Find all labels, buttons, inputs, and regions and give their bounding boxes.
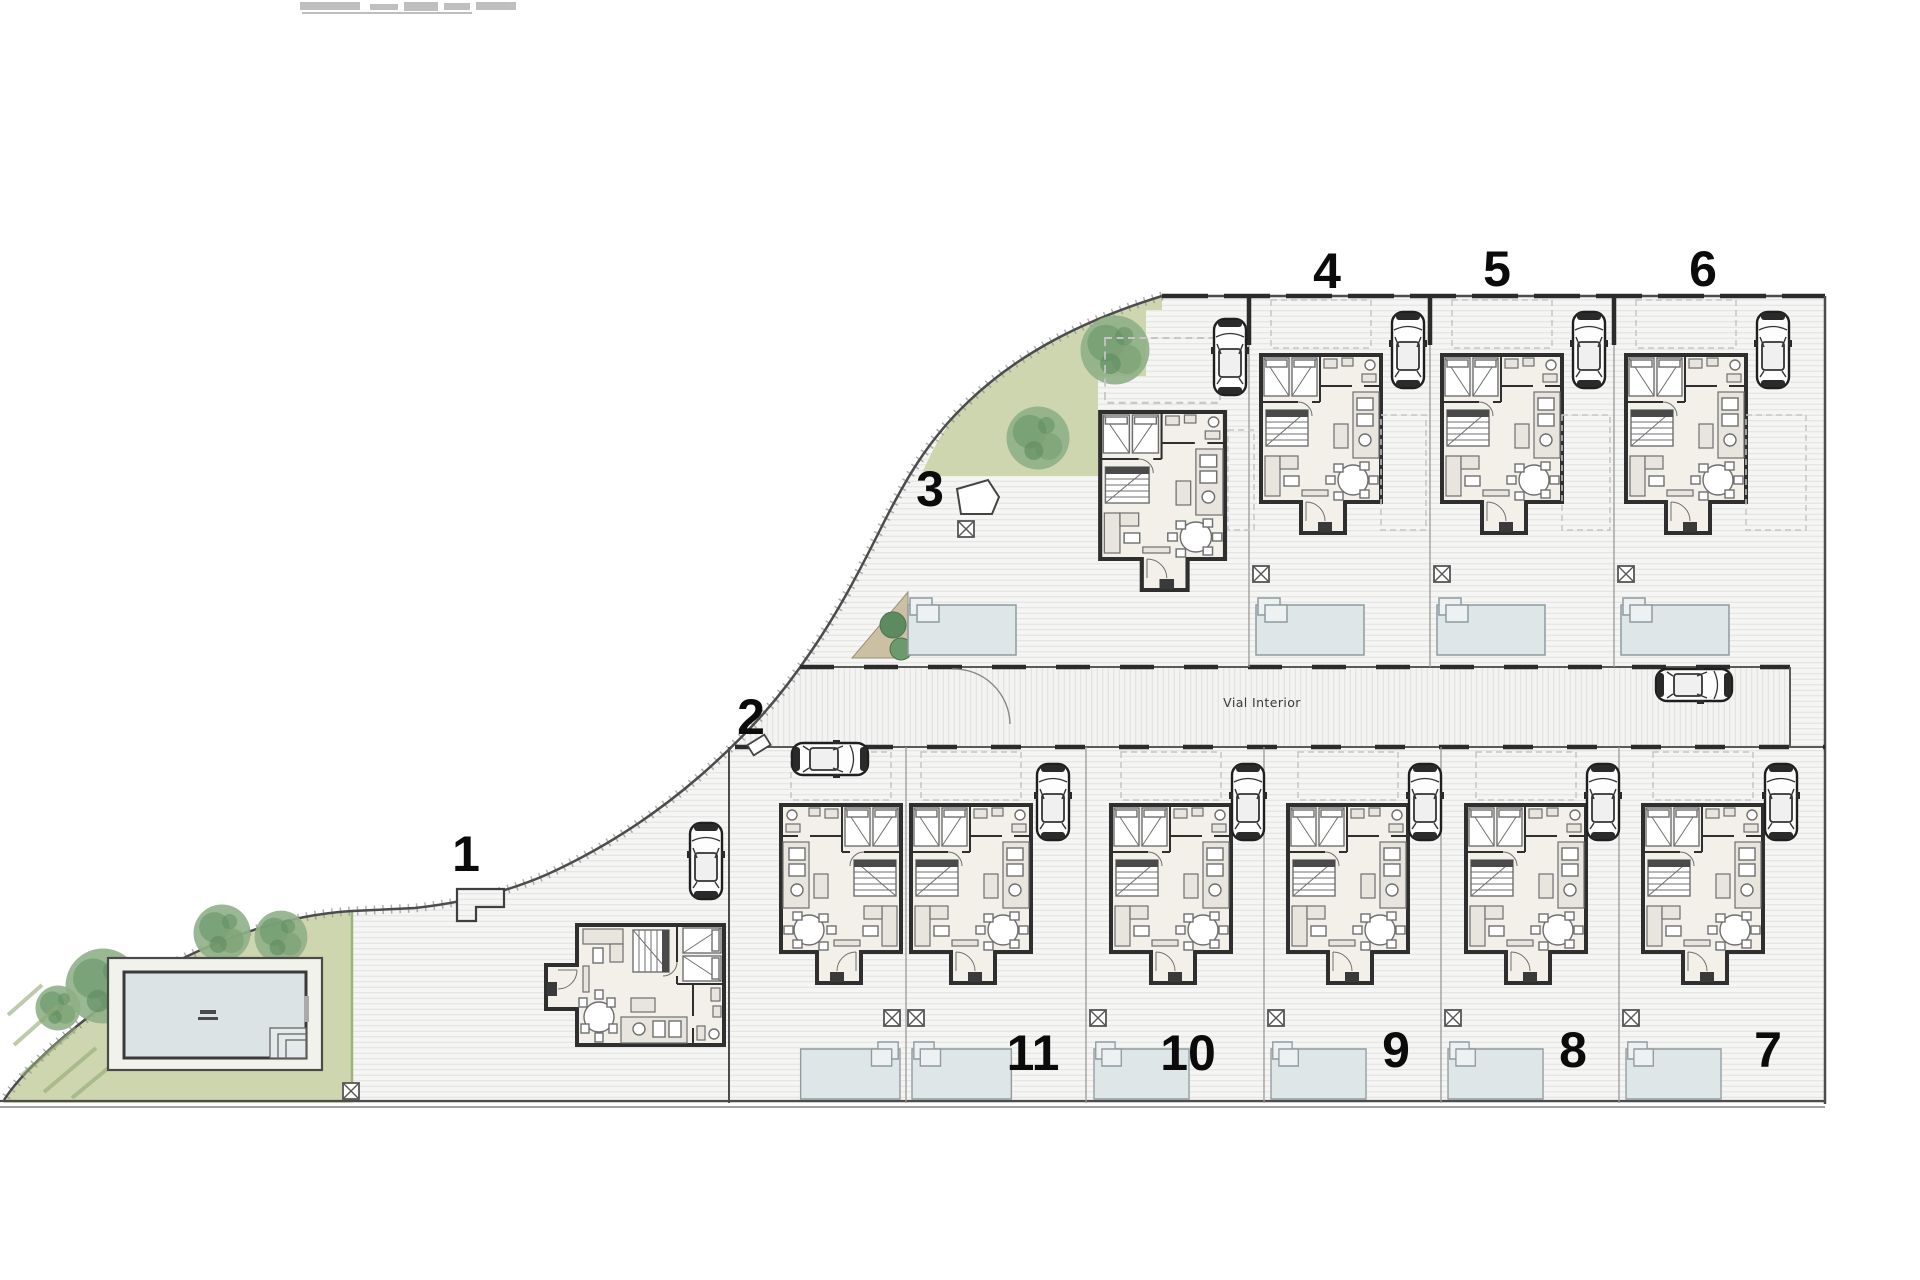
- utility-box-icon: [1618, 566, 1634, 582]
- plot-label-2: 2: [737, 689, 765, 745]
- plot-label-5: 5: [1483, 241, 1511, 297]
- utility-box-icon: [1268, 1010, 1284, 1026]
- site-plan-svg: 1 2 3 4 5 6 7 8 9 10 11 Vial Interior: [0, 0, 1920, 1280]
- plot-label-4: 4: [1313, 243, 1341, 299]
- car-icon: [1762, 764, 1800, 840]
- pool-plot11: [912, 1042, 1011, 1099]
- pool-steps: [270, 1028, 306, 1058]
- plot-label-8: 8: [1559, 1022, 1587, 1078]
- communal-pool: [108, 958, 322, 1070]
- car-icon: [1211, 319, 1249, 395]
- plot-label-6: 6: [1689, 241, 1717, 297]
- utility-box-icon: [884, 1010, 900, 1026]
- utility-box-icon: [1434, 566, 1450, 582]
- car-icon: [687, 823, 725, 899]
- tree-icon: [194, 905, 251, 962]
- plot-label-9: 9: [1382, 1022, 1410, 1078]
- plot-label-3: 3: [916, 461, 944, 517]
- car-icon: [1754, 312, 1792, 388]
- car-icon: [1406, 764, 1444, 840]
- tree-icon: [1081, 316, 1150, 385]
- car-icon: [1034, 764, 1072, 840]
- utility-box-icon: [908, 1010, 924, 1026]
- utility-box-icon: [958, 521, 974, 537]
- pool-plot8: [1448, 1042, 1543, 1099]
- pool-plot9: [1271, 1042, 1366, 1099]
- utility-box-icon: [1090, 1010, 1106, 1026]
- road-label: Vial Interior: [1223, 695, 1301, 710]
- utility-box-icon: [1445, 1010, 1461, 1026]
- car-icon: [1656, 666, 1732, 704]
- car-icon: [1389, 312, 1427, 388]
- plan-canvas: 1 2 3 4 5 6 7 8 9 10 11 Vial Interior: [0, 0, 1920, 1280]
- road-east-apron: [1790, 667, 1825, 747]
- tree-icon: [255, 911, 308, 964]
- pool-plot3: [908, 598, 1016, 655]
- pool-plot5: [1437, 598, 1545, 655]
- bush-icon: [880, 612, 906, 638]
- utility-box-icon: [1253, 566, 1269, 582]
- plot-label-10: 10: [1160, 1025, 1216, 1081]
- tree-icon: [1007, 407, 1070, 470]
- pool-plot6: [1621, 598, 1729, 655]
- utility-box-icon: [343, 1083, 359, 1099]
- car-icon: [1229, 764, 1267, 840]
- plot-label-7: 7: [1754, 1022, 1782, 1078]
- car-icon: [1584, 764, 1622, 840]
- car-icon: [792, 740, 868, 778]
- plot-label-11: 11: [1007, 1025, 1060, 1081]
- pool-edge-tick: [304, 996, 309, 1022]
- pool-plot4: [1256, 598, 1364, 655]
- plot-label-1: 1: [452, 826, 480, 882]
- pool-pair-left: [801, 1042, 900, 1099]
- car-icon: [1570, 312, 1608, 388]
- utility-box-icon: [1623, 1010, 1639, 1026]
- pool-plot7: [1626, 1042, 1721, 1099]
